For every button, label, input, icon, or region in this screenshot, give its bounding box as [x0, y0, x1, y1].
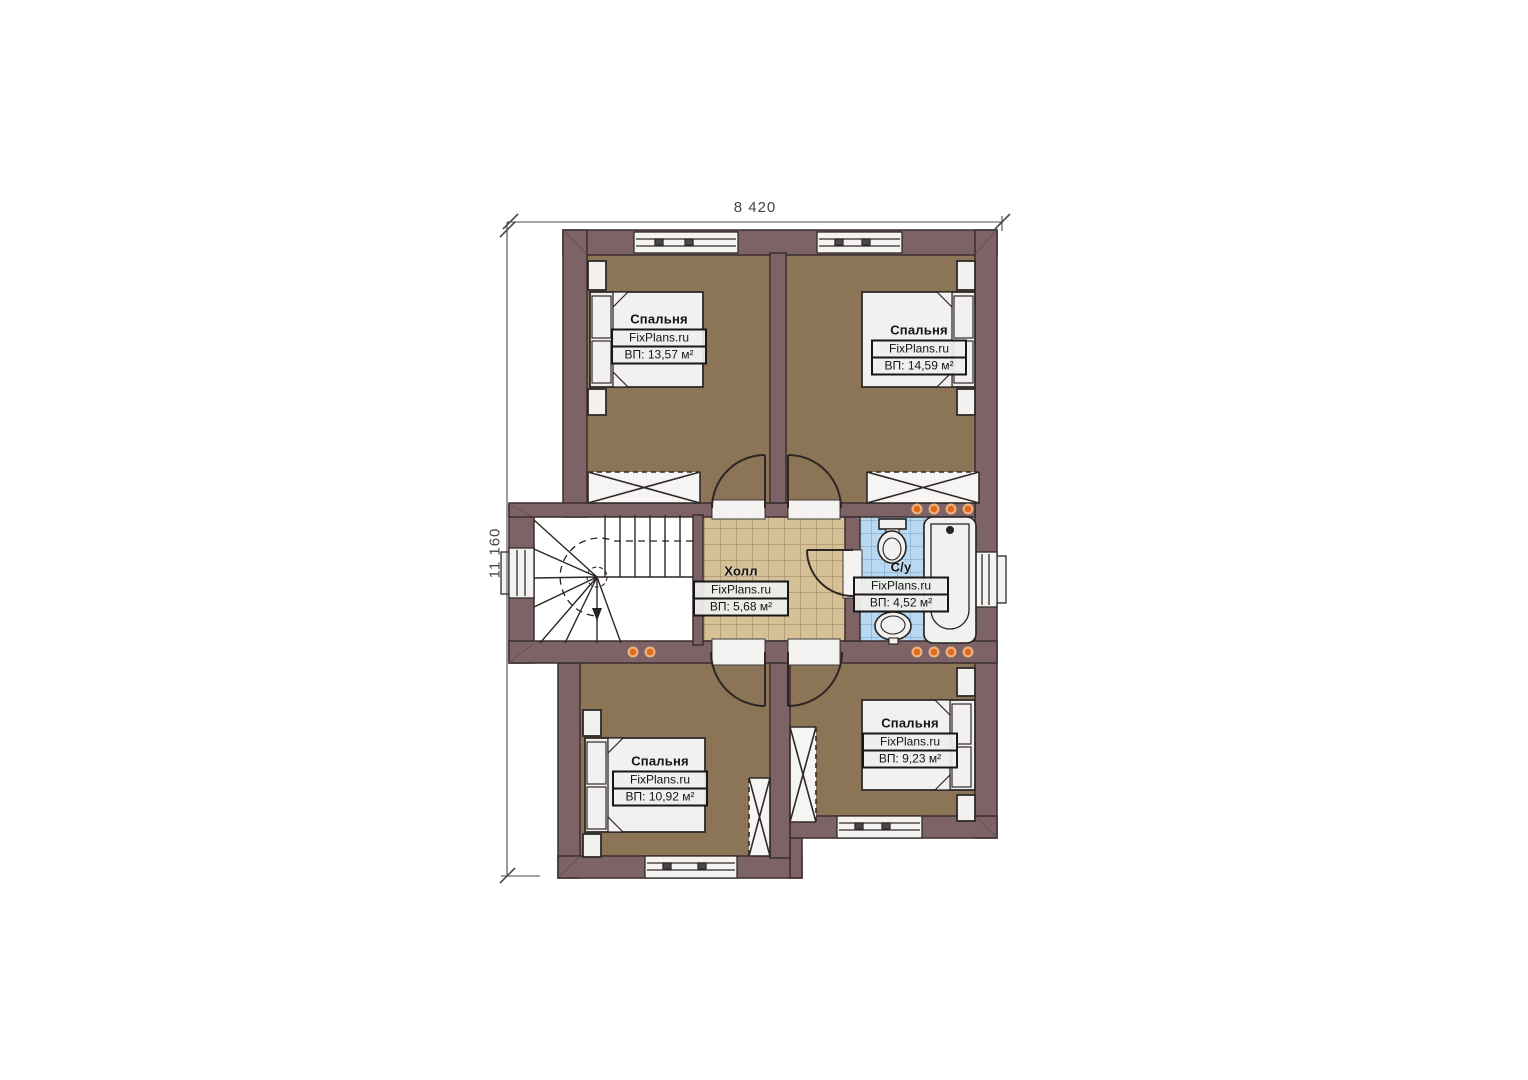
threshold-bedroom-bottom-left — [712, 639, 765, 665]
nightstand — [957, 389, 975, 415]
wall-hall-top-a — [509, 503, 712, 517]
pillow — [954, 341, 973, 383]
floor-plan: 8 420 11 160 Спальня FixPlans.ru ВП: 13,… — [0, 0, 1528, 1080]
floor-hall — [703, 515, 847, 645]
bed-top-right — [862, 292, 975, 387]
threshold-bathroom — [843, 550, 862, 598]
nightstand — [957, 261, 975, 290]
pillow — [587, 742, 606, 784]
floor-plan-page: { "dimensions": { "width_label": "8 420"… — [0, 0, 1528, 1080]
window-bottom-left — [645, 856, 737, 878]
pillow — [954, 296, 973, 338]
wall-divider-top-bedrooms — [770, 253, 786, 503]
wall-hall-bottom-b — [765, 641, 788, 663]
window-bathroom-right — [975, 552, 1006, 607]
wall-hall-bottom-a — [509, 641, 712, 663]
pillow — [952, 747, 971, 787]
wall-bathroom-b — [845, 598, 860, 641]
nightstand — [583, 834, 601, 857]
window-bottom-right — [837, 816, 922, 838]
wall-exterior-left-bottom — [558, 663, 580, 878]
wall-bathroom-a — [845, 517, 860, 550]
nightstand — [957, 668, 975, 696]
bathtub-faucet — [946, 526, 954, 534]
wall-exterior-right — [975, 230, 997, 838]
threshold-bedroom-top-right — [788, 500, 840, 519]
window-top-right — [817, 232, 902, 253]
bed-top-left — [590, 292, 703, 387]
pillow — [587, 787, 606, 829]
pillow — [952, 704, 971, 744]
wall-hall-top-b — [765, 503, 788, 517]
wardrobe-bedroom-top-right — [867, 472, 979, 503]
threshold-bedroom-bottom-right — [788, 639, 840, 665]
pillow — [592, 341, 611, 383]
nightstand — [588, 261, 606, 290]
nightstand — [588, 389, 606, 415]
bed-bottom-left — [585, 738, 705, 832]
wall-stair-hall — [693, 515, 703, 645]
threshold-bedroom-top-left — [712, 500, 765, 519]
window-stairwell-left — [501, 548, 534, 598]
wardrobe-bedroom-top-left — [588, 472, 700, 503]
nightstand — [583, 710, 601, 736]
nightstand — [957, 795, 975, 821]
bed-bottom-right — [862, 700, 975, 790]
wardrobe-bedroom-bottom-left — [749, 778, 770, 856]
wall-exterior-top — [563, 230, 997, 255]
window-top-left — [634, 232, 738, 253]
bathtub — [924, 517, 976, 643]
pillow — [592, 296, 611, 338]
wardrobe-bedroom-bottom-right — [790, 727, 816, 822]
toilet — [878, 519, 906, 563]
floor-plan-drawing — [0, 0, 1528, 1080]
floor-stairwell — [534, 515, 693, 645]
wall-exterior-left-top — [563, 230, 587, 517]
